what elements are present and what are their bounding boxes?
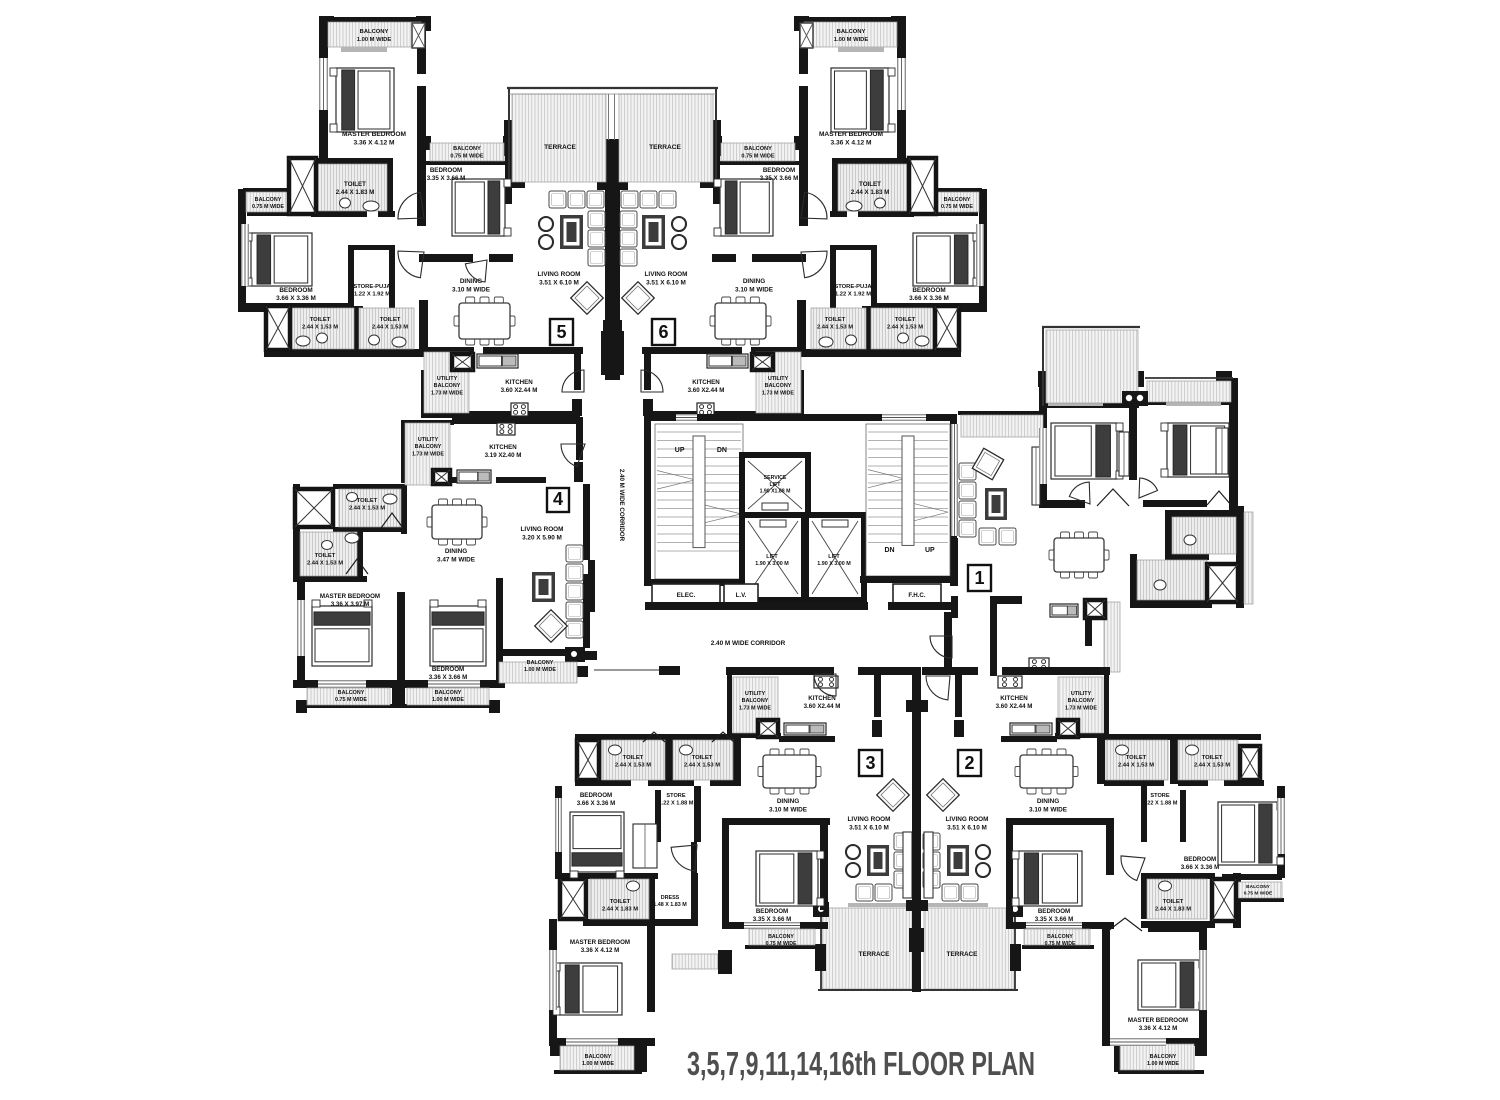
svg-text:3.60 X2.44 M: 3.60 X2.44 M <box>996 703 1033 710</box>
svg-text:1: 1 <box>974 568 984 588</box>
svg-text:UP: UP <box>925 547 935 554</box>
svg-text:3.36 X 3.66 M: 3.36 X 3.66 M <box>429 674 468 681</box>
svg-text:BALCONY: BALCONY <box>1150 1054 1177 1060</box>
svg-text:MASTER BEDROOM: MASTER BEDROOM <box>1128 1017 1188 1024</box>
svg-text:3.60 X2.44 M: 3.60 X2.44 M <box>688 387 725 394</box>
svg-text:DN: DN <box>717 447 727 454</box>
svg-text:DINING: DINING <box>445 548 467 555</box>
svg-text:3.19 X2.40 M: 3.19 X2.40 M <box>485 452 522 459</box>
svg-text:BALCONY: BALCONY <box>415 444 442 450</box>
svg-text:BALCONY: BALCONY <box>434 383 461 389</box>
svg-text:UTILITY: UTILITY <box>745 691 766 697</box>
svg-text:1.00 M WIDE: 1.00 M WIDE <box>834 37 869 43</box>
svg-text:3.66 X 3.36 M: 3.66 X 3.36 M <box>1181 864 1220 871</box>
svg-text:BALCONY: BALCONY <box>585 1054 612 1060</box>
svg-text:1.73 M WIDE: 1.73 M WIDE <box>1065 705 1097 711</box>
svg-text:3.66 X 3.36 M: 3.66 X 3.36 M <box>909 295 949 302</box>
svg-text:2.44 X 1.53 M: 2.44 X 1.53 M <box>1118 763 1154 769</box>
svg-text:TOILET: TOILET <box>692 755 713 761</box>
svg-text:3.10 M WIDE: 3.10 M WIDE <box>769 807 808 814</box>
svg-text:2.44 X 1.83 M: 2.44 X 1.83 M <box>336 189 375 196</box>
svg-text:BALCONY: BALCONY <box>453 146 481 152</box>
svg-text:3.36 X 3.97 M: 3.36 X 3.97 M <box>331 601 370 608</box>
svg-text:3.66 X 3.36 M: 3.66 X 3.36 M <box>276 295 316 302</box>
svg-text:LIVING ROOM: LIVING ROOM <box>521 526 564 533</box>
svg-text:MASTER BEDROOM: MASTER BEDROOM <box>320 593 380 600</box>
svg-text:2.40 M WIDE CORRIDOR: 2.40 M WIDE CORRIDOR <box>711 640 786 647</box>
svg-text:3.36 X 4.12 M: 3.36 X 4.12 M <box>581 947 620 954</box>
svg-text:F.H.C.: F.H.C. <box>908 592 925 599</box>
svg-text:BALCONY: BALCONY <box>1068 698 1095 704</box>
svg-text:3: 3 <box>865 753 875 773</box>
svg-text:1.00 M WIDE: 1.00 M WIDE <box>432 697 464 703</box>
svg-text:DN: DN <box>884 547 894 554</box>
svg-text:LIVING ROOM: LIVING ROOM <box>946 816 989 823</box>
svg-text:DRESS: DRESS <box>661 895 680 901</box>
svg-text:3.51 X 6.10 M: 3.51 X 6.10 M <box>947 825 987 832</box>
svg-text:TOILET: TOILET <box>344 181 366 188</box>
svg-text:BEDROOM: BEDROOM <box>1184 856 1216 863</box>
svg-text:BALCONY: BALCONY <box>1246 884 1271 890</box>
svg-text:BEDROOM: BEDROOM <box>580 792 612 799</box>
svg-text:3.35 X 3.66 M: 3.35 X 3.66 M <box>1035 916 1074 923</box>
svg-text:1.22 X 1.88 M: 1.22 X 1.88 M <box>659 800 694 806</box>
svg-text:TOILET: TOILET <box>1202 755 1223 761</box>
svg-text:LIVING ROOM: LIVING ROOM <box>848 816 891 823</box>
svg-text:LIFT: LIFT <box>828 554 840 560</box>
svg-text:2.44 X 1.53 M: 2.44 X 1.53 M <box>349 506 385 512</box>
svg-text:2.44 X 1.83 M: 2.44 X 1.83 M <box>851 189 890 196</box>
svg-text:KITCHEN: KITCHEN <box>505 379 533 386</box>
svg-text:3.35 X 3.66 M: 3.35 X 3.66 M <box>753 916 792 923</box>
svg-text:TERRACE: TERRACE <box>649 144 681 151</box>
svg-text:DINING: DINING <box>777 798 799 805</box>
svg-text:TOILET: TOILET <box>1126 755 1147 761</box>
svg-text:1.00 M WIDE: 1.00 M WIDE <box>524 667 556 673</box>
svg-text:BEDROOM: BEDROOM <box>432 666 464 673</box>
svg-text:3.51 X 6.10 M: 3.51 X 6.10 M <box>849 825 889 832</box>
svg-text:2.44 X 1.53 M: 2.44 X 1.53 M <box>887 325 923 331</box>
svg-text:BEDROOM: BEDROOM <box>279 287 312 294</box>
svg-text:1.00 M WIDE: 1.00 M WIDE <box>582 1061 614 1067</box>
svg-text:1.22 X 1.92 M: 1.22 X 1.92 M <box>354 292 390 298</box>
svg-text:MASTER BEDROOM: MASTER BEDROOM <box>342 131 407 138</box>
svg-text:ELEC.: ELEC. <box>677 592 696 599</box>
svg-text:STORE: STORE <box>1150 793 1169 799</box>
svg-text:BALCONY: BALCONY <box>837 29 866 35</box>
svg-text:STORE-PUJA: STORE-PUJA <box>834 284 872 290</box>
svg-text:BALCONY: BALCONY <box>744 146 772 152</box>
svg-text:3.35 X 3.66 M: 3.35 X 3.66 M <box>760 175 799 182</box>
svg-text:0.75 M WIDE: 0.75 M WIDE <box>766 941 797 947</box>
svg-text:2.40 M WIDE CORRIDOR: 2.40 M WIDE CORRIDOR <box>618 469 625 542</box>
svg-text:DINING: DINING <box>1037 798 1059 805</box>
svg-text:1.22 X 1.92 M: 1.22 X 1.92 M <box>835 292 871 298</box>
svg-text:1.73 M WIDE: 1.73 M WIDE <box>762 390 794 396</box>
svg-text:SERVICE: SERVICE <box>764 475 787 481</box>
svg-text:6: 6 <box>658 322 668 342</box>
svg-text:3.36 X 4.12 M: 3.36 X 4.12 M <box>1139 1025 1178 1032</box>
svg-text:MASTER BEDROOM: MASTER BEDROOM <box>819 131 884 138</box>
svg-text:UTILITY: UTILITY <box>418 437 439 443</box>
svg-text:0.75 M WIDE: 0.75 M WIDE <box>941 204 973 210</box>
svg-text:BALCONY: BALCONY <box>338 690 365 696</box>
svg-text:1.73 M WIDE: 1.73 M WIDE <box>412 451 444 457</box>
svg-text:2.44 X 1.53 M: 2.44 X 1.53 M <box>307 561 343 567</box>
svg-text:1.90 X 3.00 M: 1.90 X 3.00 M <box>817 561 851 567</box>
svg-text:0.75 M WIDE: 0.75 M WIDE <box>1244 890 1273 896</box>
svg-text:BALCONY: BALCONY <box>1047 934 1073 940</box>
svg-text:TOILET: TOILET <box>315 553 336 559</box>
svg-text:TOILET: TOILET <box>623 755 644 761</box>
svg-text:0.75 M WIDE: 0.75 M WIDE <box>741 153 775 159</box>
svg-text:1.00 M WIDE: 1.00 M WIDE <box>1147 1061 1179 1067</box>
svg-text:0.75 M WIDE: 0.75 M WIDE <box>450 153 484 159</box>
svg-text:BALCONY: BALCONY <box>768 934 794 940</box>
svg-text:TOILET: TOILET <box>357 498 378 504</box>
svg-text:2.44 X 1.53 M: 2.44 X 1.53 M <box>302 325 338 331</box>
svg-text:1.00 M WIDE: 1.00 M WIDE <box>357 37 392 43</box>
svg-text:MASTER BEDROOM: MASTER BEDROOM <box>570 939 630 946</box>
svg-text:UTILITY: UTILITY <box>768 376 789 382</box>
svg-text:3.36 X 4.12 M: 3.36 X 4.12 M <box>353 140 395 147</box>
svg-text:TOILET: TOILET <box>859 181 881 188</box>
svg-text:L.V.: L.V. <box>736 592 747 599</box>
svg-text:BALCONY: BALCONY <box>360 29 389 35</box>
svg-text:3.60 X2.44 M: 3.60 X2.44 M <box>804 703 841 710</box>
svg-text:2.44 X 1.83 M: 2.44 X 1.83 M <box>1155 907 1191 913</box>
svg-text:BEDROOM: BEDROOM <box>1038 908 1070 915</box>
svg-text:TERRACE: TERRACE <box>947 951 979 958</box>
svg-text:STORE: STORE <box>666 793 685 799</box>
svg-text:0.75 M WIDE: 0.75 M WIDE <box>335 697 367 703</box>
svg-text:1.90 X 3.00 M: 1.90 X 3.00 M <box>755 561 789 567</box>
svg-text:LIVING ROOM: LIVING ROOM <box>645 271 688 278</box>
svg-text:2.44 X 1.53 M: 2.44 X 1.53 M <box>372 325 408 331</box>
svg-text:3.10 M WIDE: 3.10 M WIDE <box>452 287 491 294</box>
svg-text:DINING: DINING <box>460 278 482 285</box>
svg-text:3.36 X 4.12 M: 3.36 X 4.12 M <box>830 140 872 147</box>
svg-text:1.90 X1.88 M: 1.90 X1.88 M <box>760 489 791 495</box>
svg-text:UP: UP <box>675 447 685 454</box>
svg-text:KITCHEN: KITCHEN <box>1000 695 1028 702</box>
svg-text:3.35 X 3.66 M: 3.35 X 3.66 M <box>427 175 466 182</box>
svg-text:1.73 M WIDE: 1.73 M WIDE <box>431 390 463 396</box>
svg-text:2: 2 <box>964 753 974 773</box>
svg-text:TOILET: TOILET <box>610 899 631 905</box>
svg-text:3.20 X 5.90 M: 3.20 X 5.90 M <box>522 535 562 542</box>
svg-text:1.22 X 1.88 M: 1.22 X 1.88 M <box>1143 800 1178 806</box>
svg-text:3.10 M WIDE: 3.10 M WIDE <box>735 287 774 294</box>
svg-text:STORE-PUJA: STORE-PUJA <box>353 284 391 290</box>
svg-text:BALCONY: BALCONY <box>765 383 792 389</box>
svg-text:TOILET: TOILET <box>1163 899 1184 905</box>
svg-text:UTILITY: UTILITY <box>1071 691 1092 697</box>
svg-text:LIVING ROOM: LIVING ROOM <box>538 271 581 278</box>
svg-text:3.47 M WIDE: 3.47 M WIDE <box>437 557 476 564</box>
svg-text:KITCHEN: KITCHEN <box>489 444 517 451</box>
svg-text:2.44 X 1.83 M: 2.44 X 1.83 M <box>602 907 638 913</box>
svg-text:BALCONY: BALCONY <box>742 698 769 704</box>
svg-text:TERRACE: TERRACE <box>544 144 576 151</box>
svg-text:5: 5 <box>556 322 566 342</box>
svg-text:BALCONY: BALCONY <box>435 690 462 696</box>
svg-text:1.73 M WIDE: 1.73 M WIDE <box>739 705 771 711</box>
svg-text:TOILET: TOILET <box>380 317 401 323</box>
svg-text:BALCONY: BALCONY <box>944 197 971 203</box>
svg-text:4: 4 <box>553 489 563 509</box>
svg-text:BEDROOM: BEDROOM <box>912 287 945 294</box>
svg-text:2.44 X 1.53 M: 2.44 X 1.53 M <box>817 325 853 331</box>
svg-text:3.60 X2.44 M: 3.60 X2.44 M <box>501 387 538 394</box>
svg-text:3.66 X 3.36 M: 3.66 X 3.36 M <box>577 800 616 807</box>
svg-text:BALCONY: BALCONY <box>255 197 282 203</box>
svg-text:TOILET: TOILET <box>895 317 916 323</box>
svg-text:3,5,7,9,11,14,16th FLOOR PLAN: 3,5,7,9,11,14,16th FLOOR PLAN <box>687 1045 1035 1082</box>
svg-text:LIFT: LIFT <box>766 554 778 560</box>
svg-text:0.75 M WIDE: 0.75 M WIDE <box>1045 941 1076 947</box>
svg-text:BEDROOM: BEDROOM <box>763 167 795 174</box>
svg-text:1.48 X 1.83 M: 1.48 X 1.83 M <box>653 902 687 908</box>
svg-text:2.44 X 1.53 M: 2.44 X 1.53 M <box>615 763 651 769</box>
svg-text:DINING: DINING <box>743 278 765 285</box>
svg-text:TOILET: TOILET <box>825 317 846 323</box>
svg-text:BALCONY: BALCONY <box>527 660 554 666</box>
svg-text:3.51 X 6.10 M: 3.51 X 6.10 M <box>539 280 579 287</box>
svg-text:UTILITY: UTILITY <box>437 376 458 382</box>
svg-text:0.75 M WIDE: 0.75 M WIDE <box>252 204 284 210</box>
svg-text:2.44 X 1.53 M: 2.44 X 1.53 M <box>1194 763 1230 769</box>
svg-text:KITCHEN: KITCHEN <box>692 379 720 386</box>
svg-text:TOILET: TOILET <box>310 317 331 323</box>
svg-text:BEDROOM: BEDROOM <box>756 908 788 915</box>
svg-text:TERRACE: TERRACE <box>859 951 891 958</box>
svg-text:3.10 M WIDE: 3.10 M WIDE <box>1029 807 1068 814</box>
svg-text:2.44 X 1.53 M: 2.44 X 1.53 M <box>684 763 720 769</box>
svg-text:BEDROOM: BEDROOM <box>430 167 462 174</box>
svg-text:3.51 X 6.10 M: 3.51 X 6.10 M <box>646 280 686 287</box>
svg-text:LIFT: LIFT <box>770 482 782 488</box>
